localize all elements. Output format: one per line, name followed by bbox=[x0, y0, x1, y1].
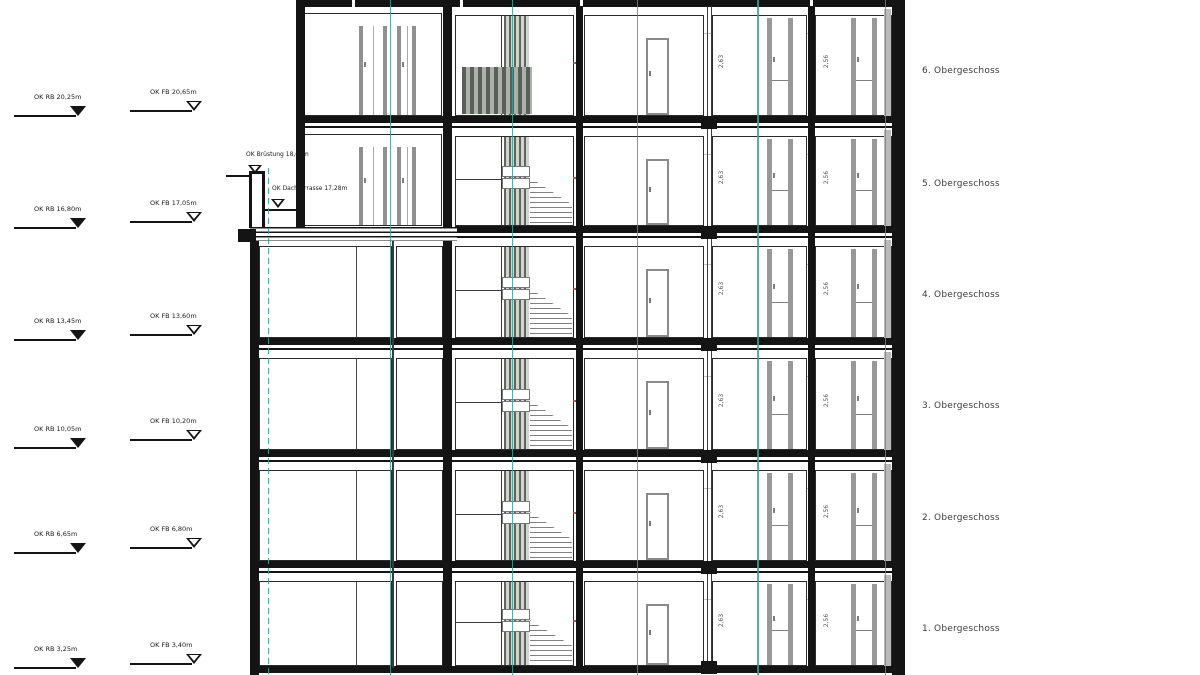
floor-label-2og: 2. Obergeschoss bbox=[922, 513, 1000, 523]
filled-triangle-icon bbox=[70, 106, 86, 116]
dimension-text: 2,63 bbox=[718, 282, 725, 295]
elevation-marker-rb-5og: OK RB 16,80m bbox=[14, 205, 114, 229]
room-east1: 2,63 bbox=[712, 581, 807, 666]
room-west bbox=[259, 358, 392, 450]
elevation-marker-rb-3og: OK RB 10,05m bbox=[14, 425, 114, 449]
elevation-marker-fb-3og: OK FB 10,20m bbox=[130, 417, 230, 441]
room-east2: 2,56 bbox=[815, 581, 892, 666]
beam bbox=[701, 450, 717, 463]
dimension-text: 2,56 bbox=[823, 282, 830, 295]
door bbox=[646, 604, 669, 665]
door bbox=[646, 38, 669, 115]
door bbox=[851, 249, 877, 337]
door bbox=[851, 473, 877, 560]
elevation-marker-rb-6og: OK RB 20,25m bbox=[14, 93, 114, 117]
glass-door bbox=[397, 147, 416, 225]
stair-landing bbox=[502, 513, 530, 524]
elevation-marker-fb-1og: OK FB 3,40m bbox=[130, 641, 230, 665]
section-axis bbox=[512, 0, 513, 675]
stairwell bbox=[455, 136, 574, 226]
stair-landing bbox=[502, 609, 530, 620]
elevation-marker-rb-2og: OK RB 6,65m bbox=[14, 530, 114, 554]
door bbox=[767, 249, 793, 337]
elevation-marker-fb-4og: OK FB 13,60m bbox=[130, 312, 230, 336]
stair-flight bbox=[530, 400, 572, 448]
room-east1: 2,63 bbox=[712, 15, 807, 116]
exterior-wall-left bbox=[250, 225, 259, 675]
beam bbox=[701, 561, 717, 574]
dimension-text: 2,56 bbox=[823, 171, 830, 184]
section-axis bbox=[885, 0, 886, 675]
elevation-marker-fb-2og: OK FB 6,80m bbox=[130, 525, 230, 549]
beam bbox=[701, 661, 717, 674]
stair-landing bbox=[502, 389, 530, 400]
room-east2: 2,56 bbox=[815, 470, 892, 561]
stair-landing bbox=[502, 621, 530, 632]
door bbox=[646, 269, 669, 337]
parapet-label: OK Brüstung 18,60m bbox=[246, 151, 309, 158]
filled-triangle-icon bbox=[70, 543, 86, 553]
room-east1: 2,63 bbox=[712, 470, 807, 561]
terrace-slab-buildup bbox=[250, 227, 457, 241]
hollow-triangle-icon bbox=[186, 538, 202, 548]
filled-triangle-icon bbox=[70, 330, 86, 340]
section-drawing-page: OK RB 20,25m OK FB 20,65m OK RB 16,80m O… bbox=[0, 0, 1200, 675]
room-center bbox=[584, 136, 704, 226]
hollow-triangle-icon bbox=[186, 430, 202, 440]
upper-window-wall bbox=[304, 13, 442, 116]
dimension-text: 2,56 bbox=[823, 614, 830, 627]
stairwell bbox=[455, 581, 574, 666]
dimension-text: 2,63 bbox=[718, 171, 725, 184]
room-east2: 2,56 bbox=[815, 358, 892, 450]
room-center bbox=[584, 358, 704, 450]
section-axis bbox=[637, 0, 638, 675]
room-corridor bbox=[396, 581, 443, 666]
partition-wall bbox=[392, 240, 394, 668]
stair-balustrade bbox=[462, 67, 532, 114]
parapet bbox=[249, 171, 265, 228]
hollow-triangle-icon bbox=[186, 101, 202, 111]
exterior-wall-right bbox=[892, 0, 905, 675]
stair-landing bbox=[502, 277, 530, 288]
filled-triangle-icon bbox=[70, 658, 86, 668]
upper-window-wall bbox=[304, 134, 442, 226]
stair-landing bbox=[502, 289, 530, 300]
dimension-text: 2,63 bbox=[718, 614, 725, 627]
filled-triangle-icon bbox=[70, 218, 86, 228]
room-west bbox=[259, 470, 392, 561]
door bbox=[767, 473, 793, 560]
hollow-triangle-icon bbox=[271, 199, 285, 208]
terrace-edge bbox=[238, 229, 256, 242]
stair-landing bbox=[502, 501, 530, 512]
door bbox=[646, 159, 669, 225]
stair-landing bbox=[502, 166, 530, 177]
setback-wall-left bbox=[296, 6, 305, 228]
stairwell bbox=[455, 470, 574, 561]
dimension-text: 2,63 bbox=[718, 394, 725, 407]
hollow-triangle-icon bbox=[186, 654, 202, 664]
stair-flight bbox=[530, 177, 572, 224]
floor-label-5og: 5. Obergeschoss bbox=[922, 179, 1000, 189]
beam bbox=[701, 226, 717, 239]
door bbox=[851, 361, 877, 449]
stairwell bbox=[455, 246, 574, 338]
section-axis bbox=[268, 168, 269, 675]
room-east1: 2,63 bbox=[712, 136, 807, 226]
room-center bbox=[584, 581, 704, 666]
hollow-triangle-icon bbox=[248, 165, 262, 174]
glass-door bbox=[359, 26, 387, 115]
floor-label-6og: 6. Obergeschoss bbox=[922, 66, 1000, 76]
room-west bbox=[259, 246, 392, 338]
dimension-text: 2,56 bbox=[823, 394, 830, 407]
door bbox=[646, 381, 669, 449]
interior-wall bbox=[808, 6, 815, 670]
window-mullion bbox=[356, 582, 357, 665]
stair-wall bbox=[576, 6, 583, 670]
room-west bbox=[259, 581, 392, 666]
floor-label-1og: 1. Obergeschoss bbox=[922, 624, 1000, 634]
stair-flight bbox=[530, 512, 572, 559]
interior-wall bbox=[443, 6, 452, 670]
elevation-marker-fb-6og: OK FB 20,65m bbox=[130, 88, 230, 112]
room-east1: 2,63 bbox=[712, 246, 807, 338]
hollow-triangle-icon bbox=[186, 325, 202, 335]
room-east1: 2,63 bbox=[712, 358, 807, 450]
door bbox=[767, 584, 793, 665]
stairwell bbox=[455, 15, 574, 116]
room-center bbox=[584, 470, 704, 561]
dimension-text: 2,63 bbox=[718, 54, 725, 67]
room-corridor bbox=[396, 470, 443, 561]
dimension-text: 2,63 bbox=[718, 505, 725, 518]
door bbox=[767, 18, 793, 115]
window-mullion bbox=[356, 247, 357, 337]
door bbox=[767, 361, 793, 449]
floor-slab bbox=[455, 226, 905, 238]
stair-flight bbox=[530, 288, 572, 336]
stair-flight bbox=[530, 620, 572, 664]
beam bbox=[701, 116, 717, 129]
filled-triangle-icon bbox=[70, 438, 86, 448]
glass-door bbox=[359, 147, 387, 225]
door bbox=[767, 139, 793, 225]
elevation-marker-rb-4og: OK RB 13,45m bbox=[14, 317, 114, 341]
dimension-text: 2,56 bbox=[823, 505, 830, 518]
hollow-triangle-icon bbox=[186, 212, 202, 222]
glass-door bbox=[397, 26, 416, 115]
dimension-text: 2,56 bbox=[823, 54, 830, 67]
room-east2: 2,56 bbox=[815, 246, 892, 338]
window-mullion bbox=[356, 471, 357, 560]
window-mullion bbox=[356, 359, 357, 449]
stairwell bbox=[455, 358, 574, 450]
stair-landing bbox=[502, 178, 530, 189]
room-center bbox=[584, 246, 704, 338]
room-east2: 2,56 bbox=[815, 15, 892, 116]
room-corridor bbox=[396, 246, 443, 338]
stair-landing bbox=[502, 401, 530, 412]
elevation-marker-rb-1og: OK RB 3,25m bbox=[14, 645, 114, 669]
door bbox=[851, 18, 877, 115]
beam bbox=[701, 338, 717, 351]
room-center bbox=[584, 15, 704, 116]
door bbox=[851, 139, 877, 225]
terrace-label: OK Dachterrasse 17,28m bbox=[272, 185, 347, 192]
elevation-marker-fb-5og: OK FB 17,05m bbox=[130, 199, 230, 223]
floor-label-4og: 4. Obergeschoss bbox=[922, 290, 1000, 300]
section-axis bbox=[757, 0, 759, 675]
room-east2: 2,56 bbox=[815, 136, 892, 226]
section-axis bbox=[390, 0, 391, 675]
door bbox=[851, 584, 877, 665]
door bbox=[646, 493, 669, 560]
room-corridor bbox=[396, 358, 443, 450]
floor-label-3og: 3. Obergeschoss bbox=[922, 401, 1000, 411]
